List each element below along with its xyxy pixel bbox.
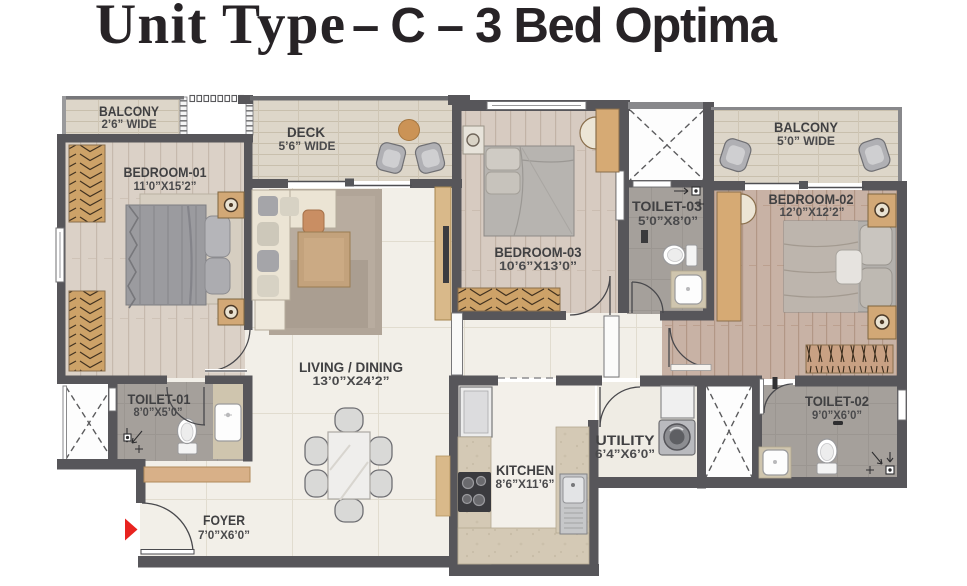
svg-text:BEDROOM-02: BEDROOM-02 (769, 191, 854, 207)
svg-text:8’0”X5’0”: 8’0”X5’0” (134, 407, 183, 419)
svg-text:KITCHEN: KITCHEN (496, 462, 554, 478)
svg-text:DECK: DECK (287, 124, 325, 140)
svg-text:7’0”X6’0”: 7’0”X6’0” (198, 530, 250, 542)
svg-text:11’0”X15’2”: 11’0”X15’2” (134, 181, 197, 193)
svg-text:9’0”X6’0”: 9’0”X6’0” (812, 410, 862, 422)
svg-text:– C – 3 Bed Optima: – C – 3 Bed Optima (352, 0, 778, 53)
svg-text:5’6” WIDE: 5’6” WIDE (279, 141, 336, 153)
svg-text:6’4”X6’0”: 6’4”X6’0” (595, 449, 655, 461)
svg-text:UTILITY: UTILITY (596, 432, 656, 448)
svg-text:BEDROOM-01: BEDROOM-01 (124, 164, 207, 180)
svg-text:LIVING / DINING: LIVING / DINING (299, 359, 403, 375)
svg-text:TOILET-02: TOILET-02 (805, 393, 869, 409)
svg-text:FOYER: FOYER (203, 512, 245, 528)
svg-text:2’6” WIDE: 2’6” WIDE (102, 119, 157, 131)
svg-text:10’6”X13’0”: 10’6”X13’0” (499, 261, 577, 273)
svg-text:TOILET-01: TOILET-01 (128, 391, 191, 407)
svg-text:8’6”X11’6”: 8’6”X11’6” (496, 479, 555, 491)
svg-text:13’0”X24’2”: 13’0”X24’2” (313, 376, 390, 388)
svg-text:5’0” WIDE: 5’0” WIDE (777, 136, 835, 148)
svg-text:12’0”X12’2”: 12’0”X12’2” (780, 207, 845, 219)
svg-text:BALCONY: BALCONY (99, 103, 160, 119)
svg-text:TOILET-03: TOILET-03 (632, 198, 702, 214)
svg-text:BALCONY: BALCONY (774, 119, 839, 135)
svg-text:5’0”X8’0”: 5’0”X8’0” (638, 216, 698, 228)
svg-text:BEDROOM-03: BEDROOM-03 (495, 244, 582, 260)
svg-text:Unit Type: Unit Type (95, 0, 345, 56)
